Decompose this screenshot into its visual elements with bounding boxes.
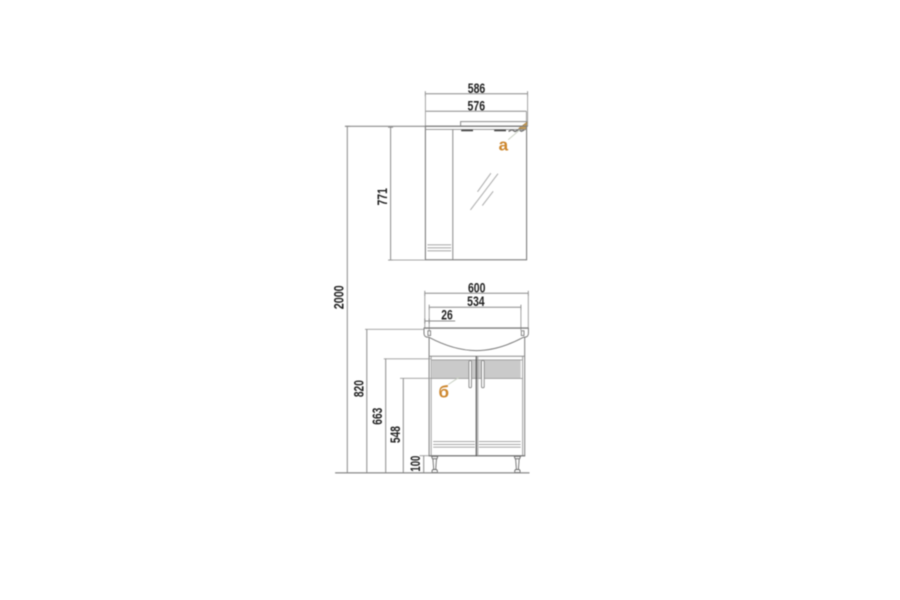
svg-text:576: 576 bbox=[468, 98, 486, 113]
svg-text:б: б bbox=[439, 382, 450, 401]
svg-text:a: a bbox=[499, 136, 509, 155]
svg-text:26: 26 bbox=[441, 308, 453, 323]
svg-text:2000: 2000 bbox=[332, 285, 347, 309]
svg-text:771: 771 bbox=[375, 188, 390, 206]
svg-text:663: 663 bbox=[370, 407, 385, 424]
svg-text:820: 820 bbox=[351, 380, 366, 397]
svg-text:586: 586 bbox=[468, 81, 486, 96]
svg-text:548: 548 bbox=[388, 426, 403, 443]
svg-text:534: 534 bbox=[467, 294, 485, 309]
svg-text:100: 100 bbox=[408, 456, 423, 472]
